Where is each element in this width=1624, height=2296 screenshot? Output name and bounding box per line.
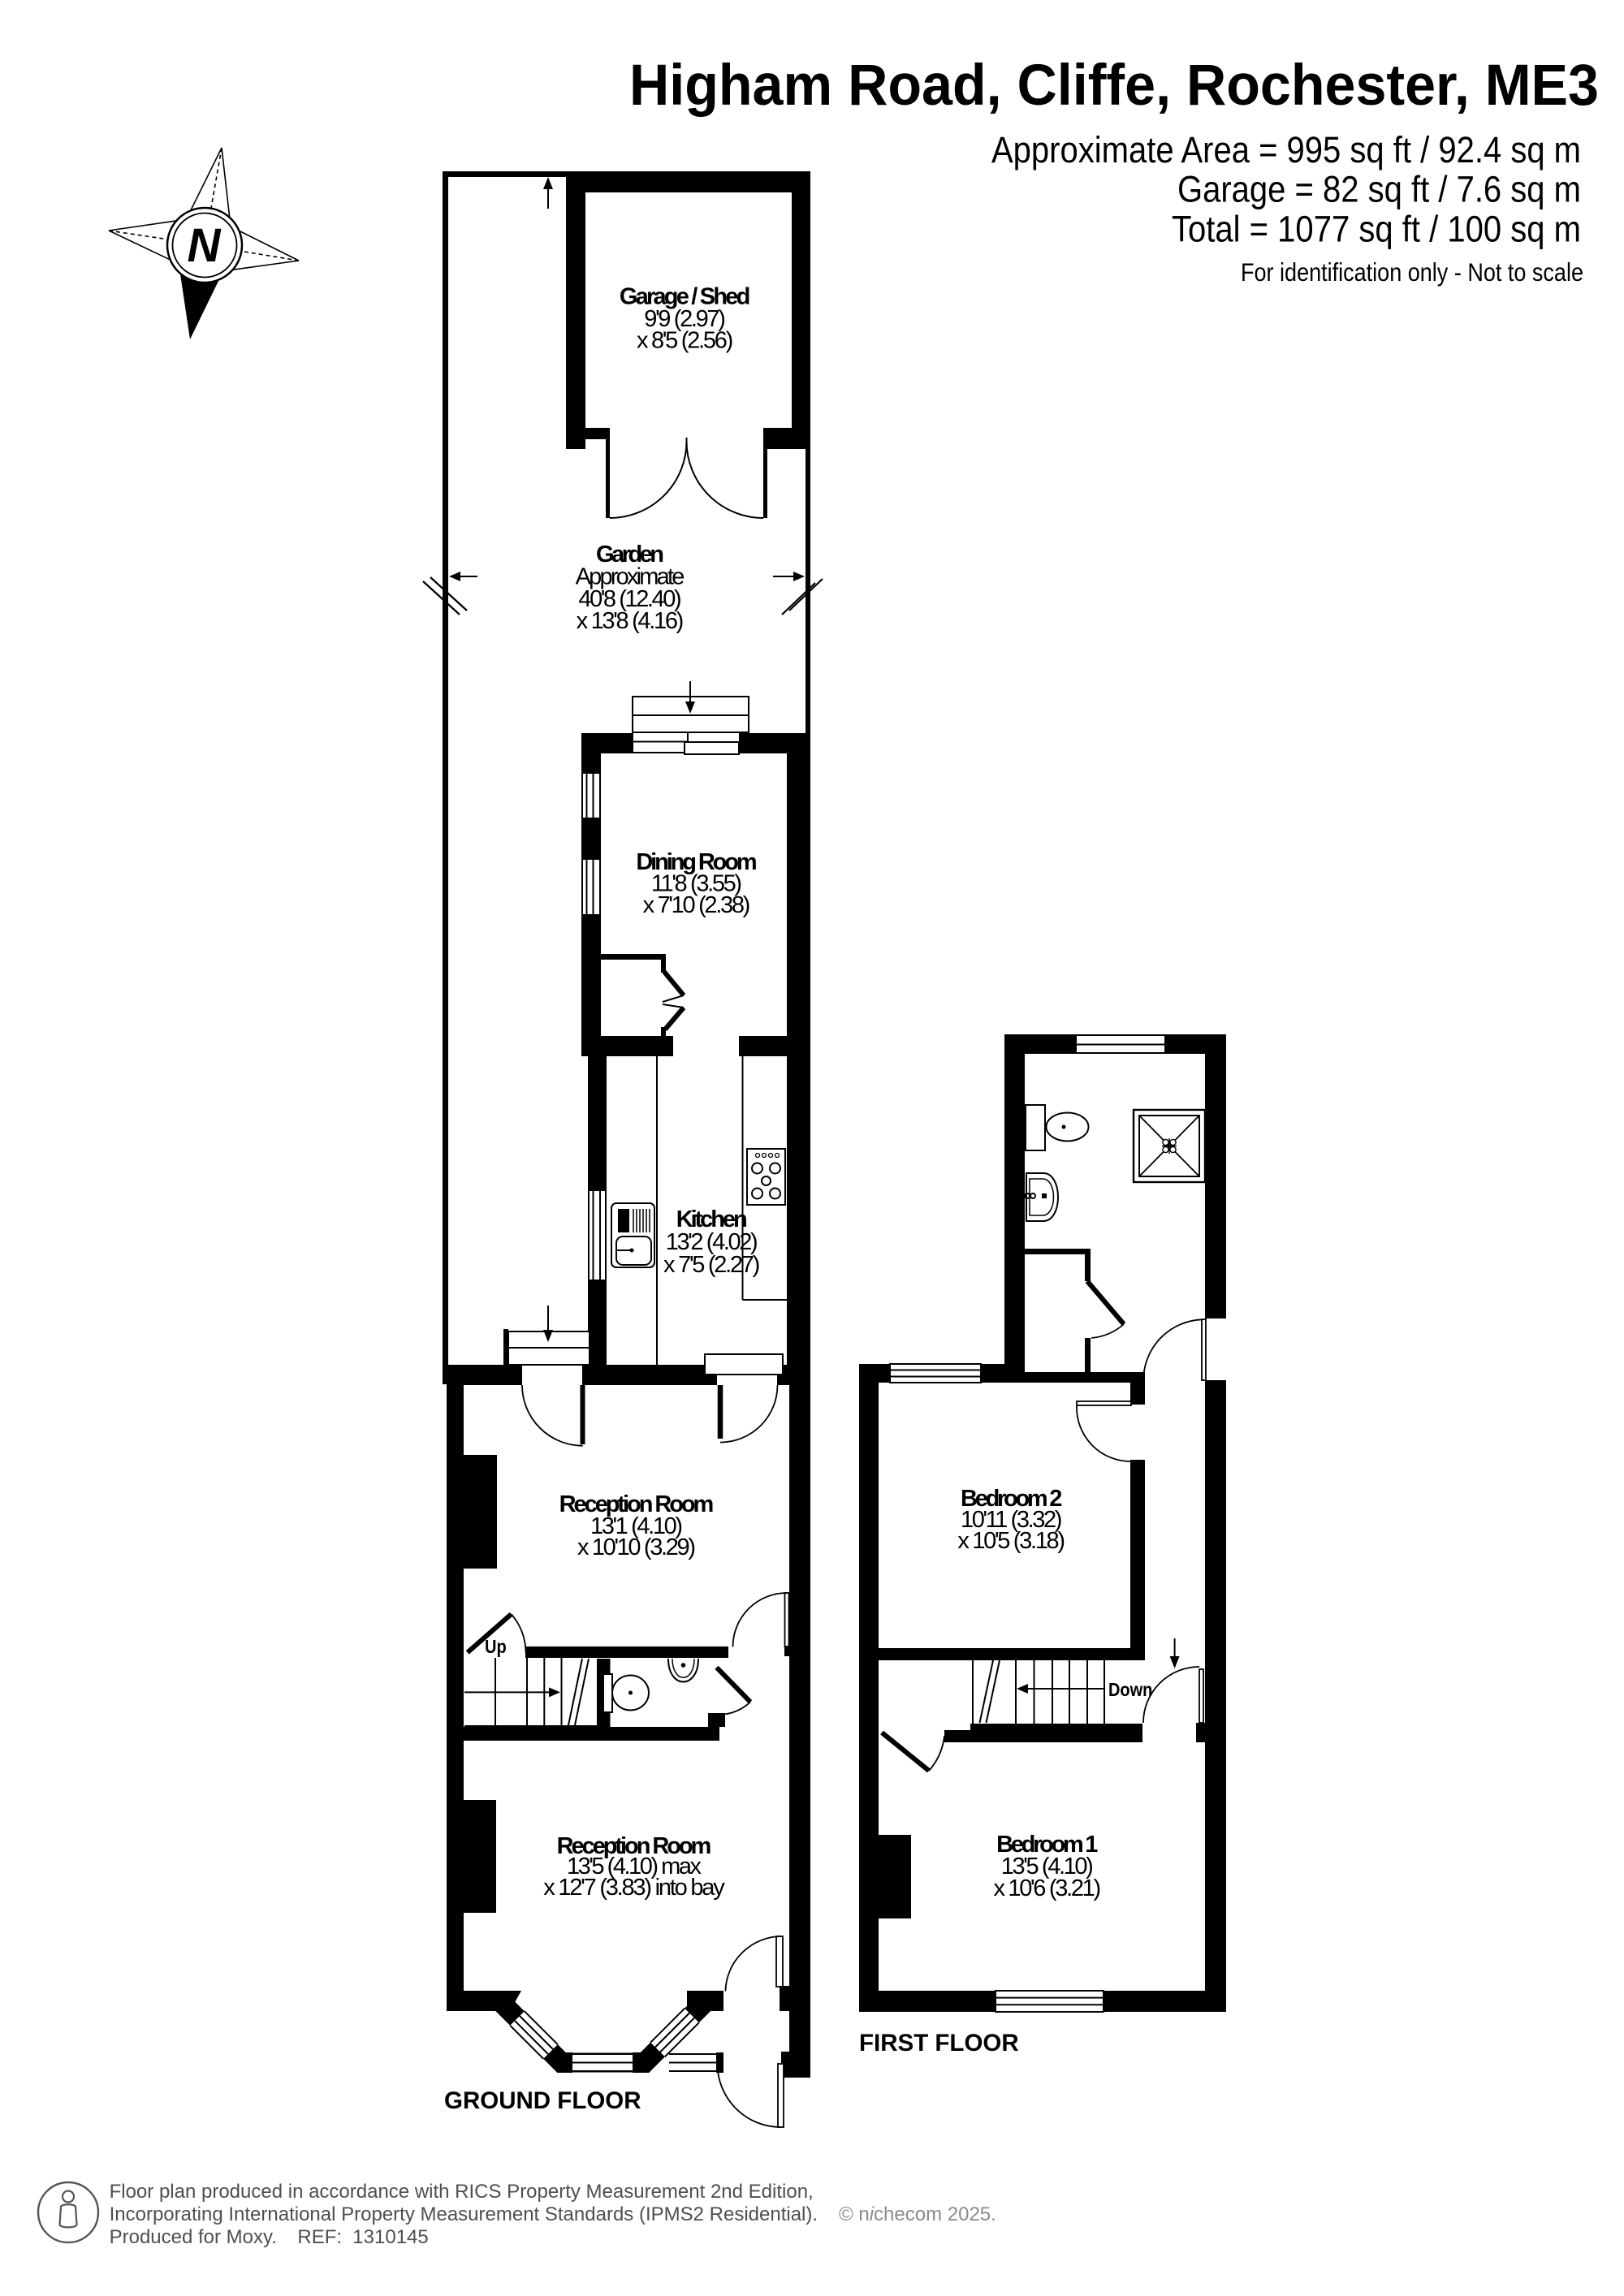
svg-text:Produced for Moxy.: Produced for Moxy. [110,2226,277,2248]
svg-text:Higham Road, Cliffe, Rochester: Higham Road, Cliffe, Rochester, ME3 [629,54,1599,118]
svg-text:x 7'10 (2.38): x 7'10 (2.38) [643,892,751,918]
svg-text:Incorporating International Pr: Incorporating International Property Mea… [110,2203,818,2225]
svg-text:© nichecom 2025.: © nichecom 2025. [839,2203,996,2225]
svg-text:Garage = 82 sq ft / 7.6 sq m: Garage = 82 sq ft / 7.6 sq m [1177,169,1581,210]
svg-text:x 12'7 (3.83) into bay: x 12'7 (3.83) into bay [543,1875,725,1901]
svg-text:Floor plan produced in accorda: Floor plan produced in accordance with R… [110,2181,814,2203]
svg-text:x 13'8 (4.16): x 13'8 (4.16) [577,608,685,634]
svg-text:Up: Up [485,1636,507,1657]
svg-text:1310145: 1310145 [352,2226,428,2248]
svg-text:Total = 1077 sq ft / 100 sq m: Total = 1077 sq ft / 100 sq m [1172,209,1581,250]
svg-text:N: N [188,219,222,272]
svg-text:x 7'5 (2.27): x 7'5 (2.27) [663,1252,760,1278]
svg-text:FIRST FLOOR: FIRST FLOOR [859,2030,1019,2056]
svg-text:x 8'5 (2.56): x 8'5 (2.56) [637,327,733,353]
svg-text:GROUND FLOOR: GROUND FLOOR [444,2087,641,2114]
svg-text:x 10'5 (3.18): x 10'5 (3.18) [957,1528,1065,1554]
svg-text:Approximate Area = 995 sq ft /: Approximate Area = 995 sq ft / 92.4 sq m [991,129,1581,170]
svg-text:x 10'10 (3.29): x 10'10 (3.29) [577,1534,696,1560]
svg-text:x 10'6 (3.21): x 10'6 (3.21) [993,1875,1101,1901]
svg-text:Down: Down [1108,1679,1152,1700]
svg-text:For identification only - Not: For identification only - Not to scale [1241,257,1583,287]
svg-text:REF:: REF: [297,2226,342,2248]
